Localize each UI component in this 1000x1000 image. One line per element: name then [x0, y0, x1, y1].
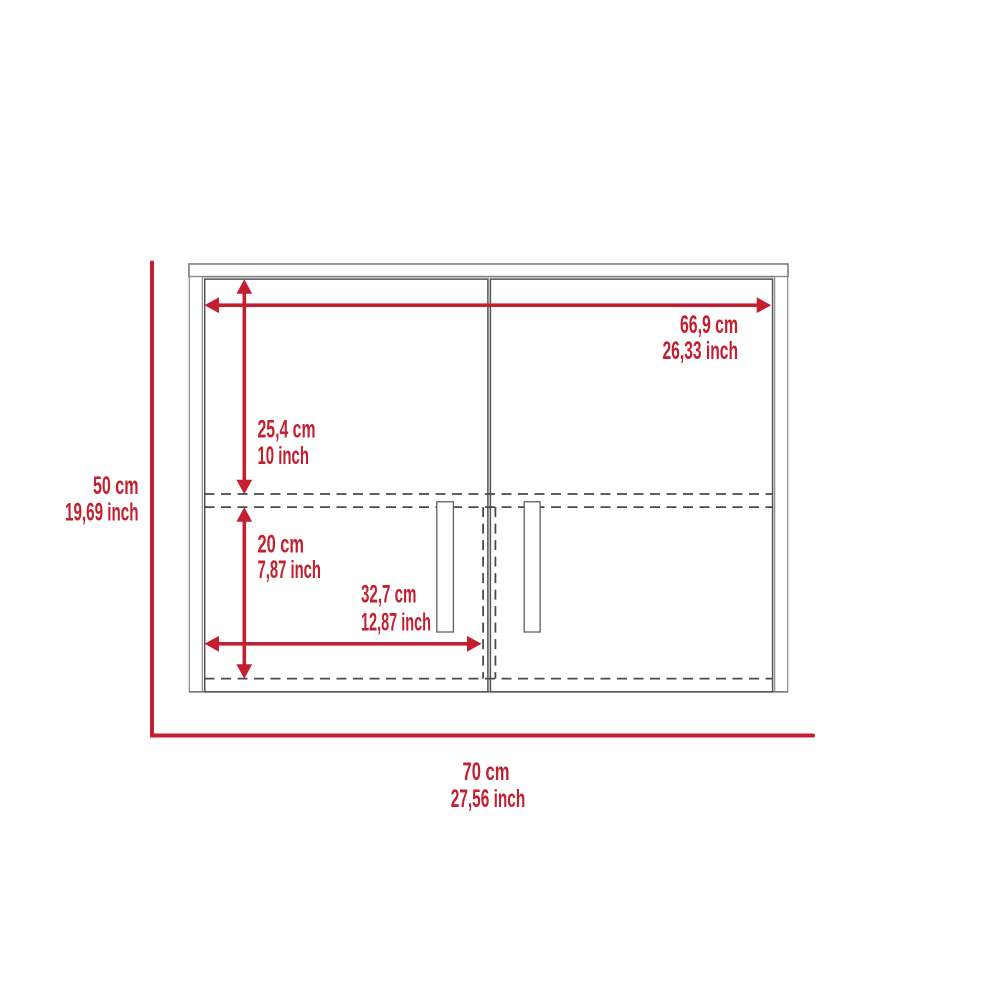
svg-text:26,33 inch: 26,33 inch	[663, 337, 739, 365]
svg-text:32,7 cm: 32,7 cm	[361, 581, 417, 609]
svg-text:19,69 inch: 19,69 inch	[65, 498, 139, 526]
svg-text:7,87 inch: 7,87 inch	[258, 556, 322, 584]
svg-text:25,4 cm: 25,4 cm	[258, 416, 316, 444]
svg-text:12,87 inch: 12,87 inch	[361, 609, 431, 637]
svg-text:10 inch: 10 inch	[258, 442, 310, 470]
svg-text:20 cm: 20 cm	[258, 530, 305, 558]
svg-text:27,56 inch: 27,56 inch	[451, 785, 526, 813]
svg-text:50 cm: 50 cm	[93, 472, 139, 500]
svg-text:66,9 cm: 66,9 cm	[680, 311, 738, 339]
svg-text:70 cm: 70 cm	[463, 758, 510, 786]
